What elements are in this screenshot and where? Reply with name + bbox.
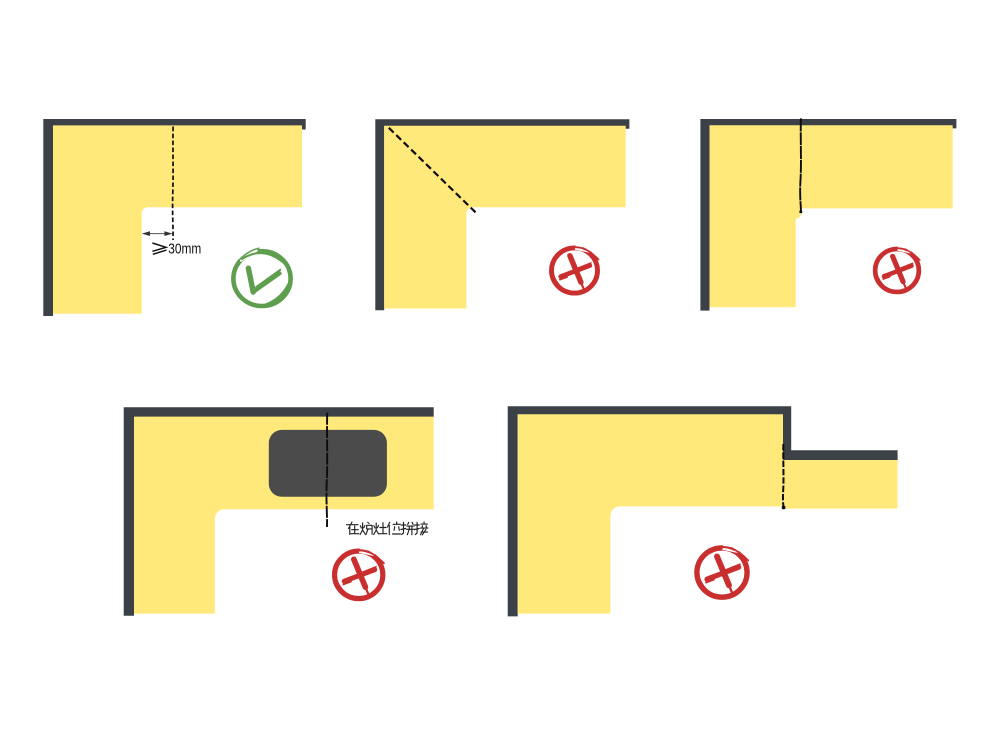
svg-text:30mm: 30mm <box>168 242 201 258</box>
